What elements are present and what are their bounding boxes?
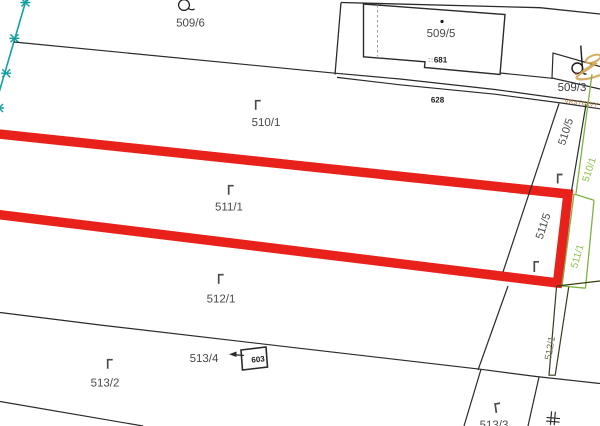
svg-text:681: 681: [434, 55, 448, 64]
svg-text:510/1: 510/1: [581, 156, 599, 184]
svg-text:628: 628: [431, 95, 445, 104]
svg-text:513/3: 513/3: [480, 420, 509, 426]
svg-text:509/5: 509/5: [427, 28, 456, 40]
svg-text:513/2: 513/2: [91, 378, 120, 390]
svg-text:510/1: 510/1: [252, 117, 281, 129]
svg-text:603: 603: [251, 354, 266, 364]
svg-text:511/1: 511/1: [215, 202, 243, 214]
svg-text:513/4: 513/4: [190, 353, 219, 365]
svg-text:511/5: 511/5: [534, 212, 554, 241]
svg-text:509/3: 509/3: [558, 82, 587, 94]
svg-text:512/1: 512/1: [207, 294, 236, 306]
svg-text:VRSTULVY: VRSTULVY: [564, 98, 598, 109]
svg-text:510/5: 510/5: [556, 117, 576, 147]
svg-text:509/6: 509/6: [176, 18, 205, 30]
svg-text:512/1: 512/1: [543, 336, 558, 361]
svg-text:511/1: 511/1: [569, 243, 586, 270]
